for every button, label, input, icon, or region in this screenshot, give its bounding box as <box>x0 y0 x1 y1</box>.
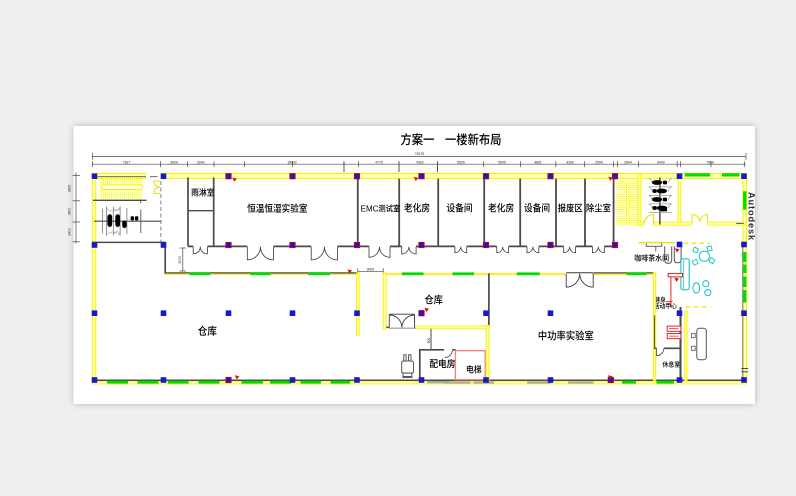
svg-text:18002: 18002 <box>287 160 297 164</box>
svg-text:4775: 4775 <box>375 160 383 164</box>
svg-text:3825: 3825 <box>68 185 72 193</box>
svg-text:Autodesk: Autodesk <box>747 192 757 241</box>
svg-text:3801: 3801 <box>534 160 542 164</box>
svg-text:2844: 2844 <box>624 160 632 164</box>
svg-text:7627: 7627 <box>123 160 131 164</box>
svg-text:3000: 3000 <box>170 160 178 164</box>
svg-text:5505: 5505 <box>498 160 506 164</box>
svg-text:6400: 6400 <box>657 160 665 164</box>
svg-text:5505: 5505 <box>457 160 465 164</box>
svg-text:3000: 3000 <box>178 256 182 264</box>
svg-text:2594: 2594 <box>595 160 603 164</box>
svg-text:EMC: EMC <box>361 204 379 213</box>
svg-text:7500: 7500 <box>706 160 714 164</box>
svg-text:3000: 3000 <box>197 160 205 164</box>
svg-text:4302: 4302 <box>416 160 424 164</box>
svg-text:3300: 3300 <box>566 160 574 164</box>
svg-text:3000: 3000 <box>367 267 375 271</box>
svg-text:76276: 76276 <box>415 152 425 156</box>
svg-text:2400: 2400 <box>68 228 72 236</box>
svg-text:900: 900 <box>427 338 431 344</box>
svg-text:3400: 3400 <box>68 208 72 216</box>
